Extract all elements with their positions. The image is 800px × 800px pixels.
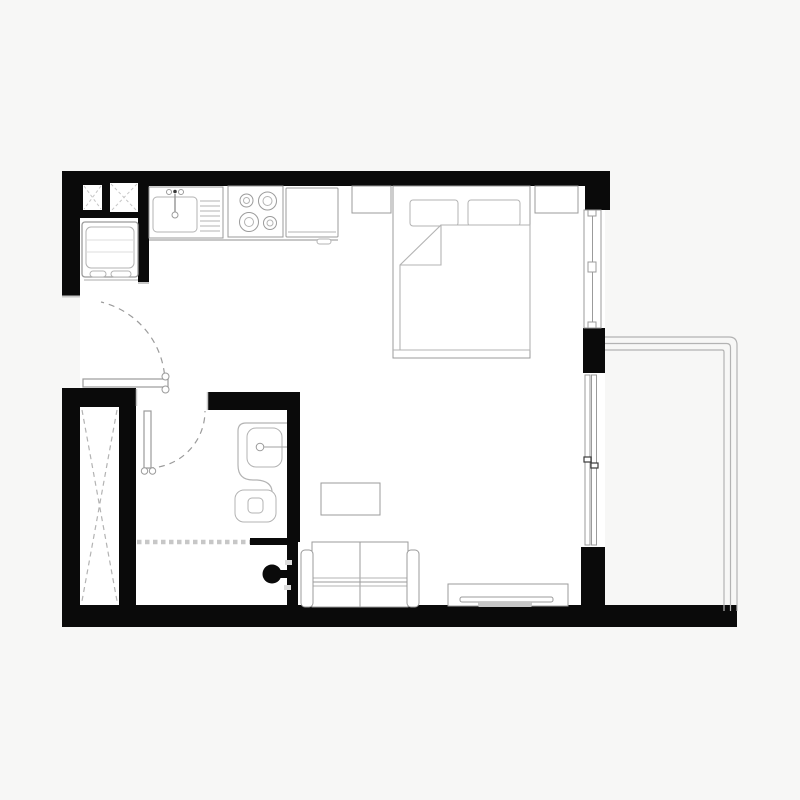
door-pull-mark-bottom — [284, 585, 291, 590]
sofa-armrest-left — [301, 550, 313, 607]
wall-bathroom-top — [207, 392, 300, 410]
window-mullion-bottom — [588, 322, 596, 328]
slider-door-track-right — [592, 375, 597, 545]
pillow-2 — [468, 200, 520, 226]
wall-bottom — [62, 605, 737, 627]
oven — [286, 188, 338, 237]
balcony-railing-inner — [605, 350, 724, 611]
kitchen-sink-unit — [149, 187, 223, 238]
oven-handle — [317, 239, 331, 244]
wall-closet-right — [119, 407, 136, 627]
balcony-railing-outer — [605, 337, 737, 611]
wall-bathroom-lower — [287, 540, 298, 627]
slider-door-handle-left — [584, 457, 591, 462]
fridge-handle-2 — [111, 271, 131, 277]
wall-fridge-niche — [138, 171, 149, 283]
faucet-dot — [173, 190, 177, 194]
nightstand-right — [535, 186, 578, 213]
wall-window-pier-bottom — [581, 547, 605, 607]
coffee-table — [321, 483, 380, 515]
entry-door-leaf — [83, 379, 168, 387]
wall-window-pier-top — [585, 171, 610, 210]
tv-screen — [460, 597, 553, 602]
floor-plan-canvas — [0, 0, 800, 800]
door-pull-stem — [279, 570, 289, 578]
bathroom-door-leaf — [144, 411, 151, 468]
floor-plan-svg — [0, 0, 800, 800]
window-mullion-middle — [588, 262, 596, 272]
sofa-armrest-right — [407, 550, 419, 607]
door-pull-knob — [263, 565, 282, 584]
entry-door-hinge-top — [162, 373, 169, 380]
wall-left-lower — [62, 388, 80, 627]
sink-drainboard — [200, 201, 220, 231]
bathroom-door-hinge-right — [149, 468, 155, 474]
balcony-railing-middle — [605, 344, 731, 612]
fridge — [82, 222, 138, 277]
window-mullion-top — [588, 210, 596, 216]
nightstand-left — [352, 186, 391, 213]
toilet-bowl — [235, 490, 276, 522]
wall-entry-stub — [62, 388, 136, 407]
door-pull-mark-top — [285, 560, 292, 565]
tv-stand — [478, 602, 532, 607]
entry-door-hinge-bottom — [162, 386, 169, 393]
pillow-1 — [410, 200, 458, 226]
wall-left-upper — [62, 171, 80, 296]
wall-bathroom-right — [287, 392, 300, 542]
wall-window-pier-middle — [583, 328, 605, 373]
bathroom-door-hinge-left — [141, 468, 147, 474]
slider-door-handle-right — [591, 463, 598, 468]
fridge-handle-1 — [90, 271, 106, 277]
duct-shaft-small — [83, 185, 102, 210]
